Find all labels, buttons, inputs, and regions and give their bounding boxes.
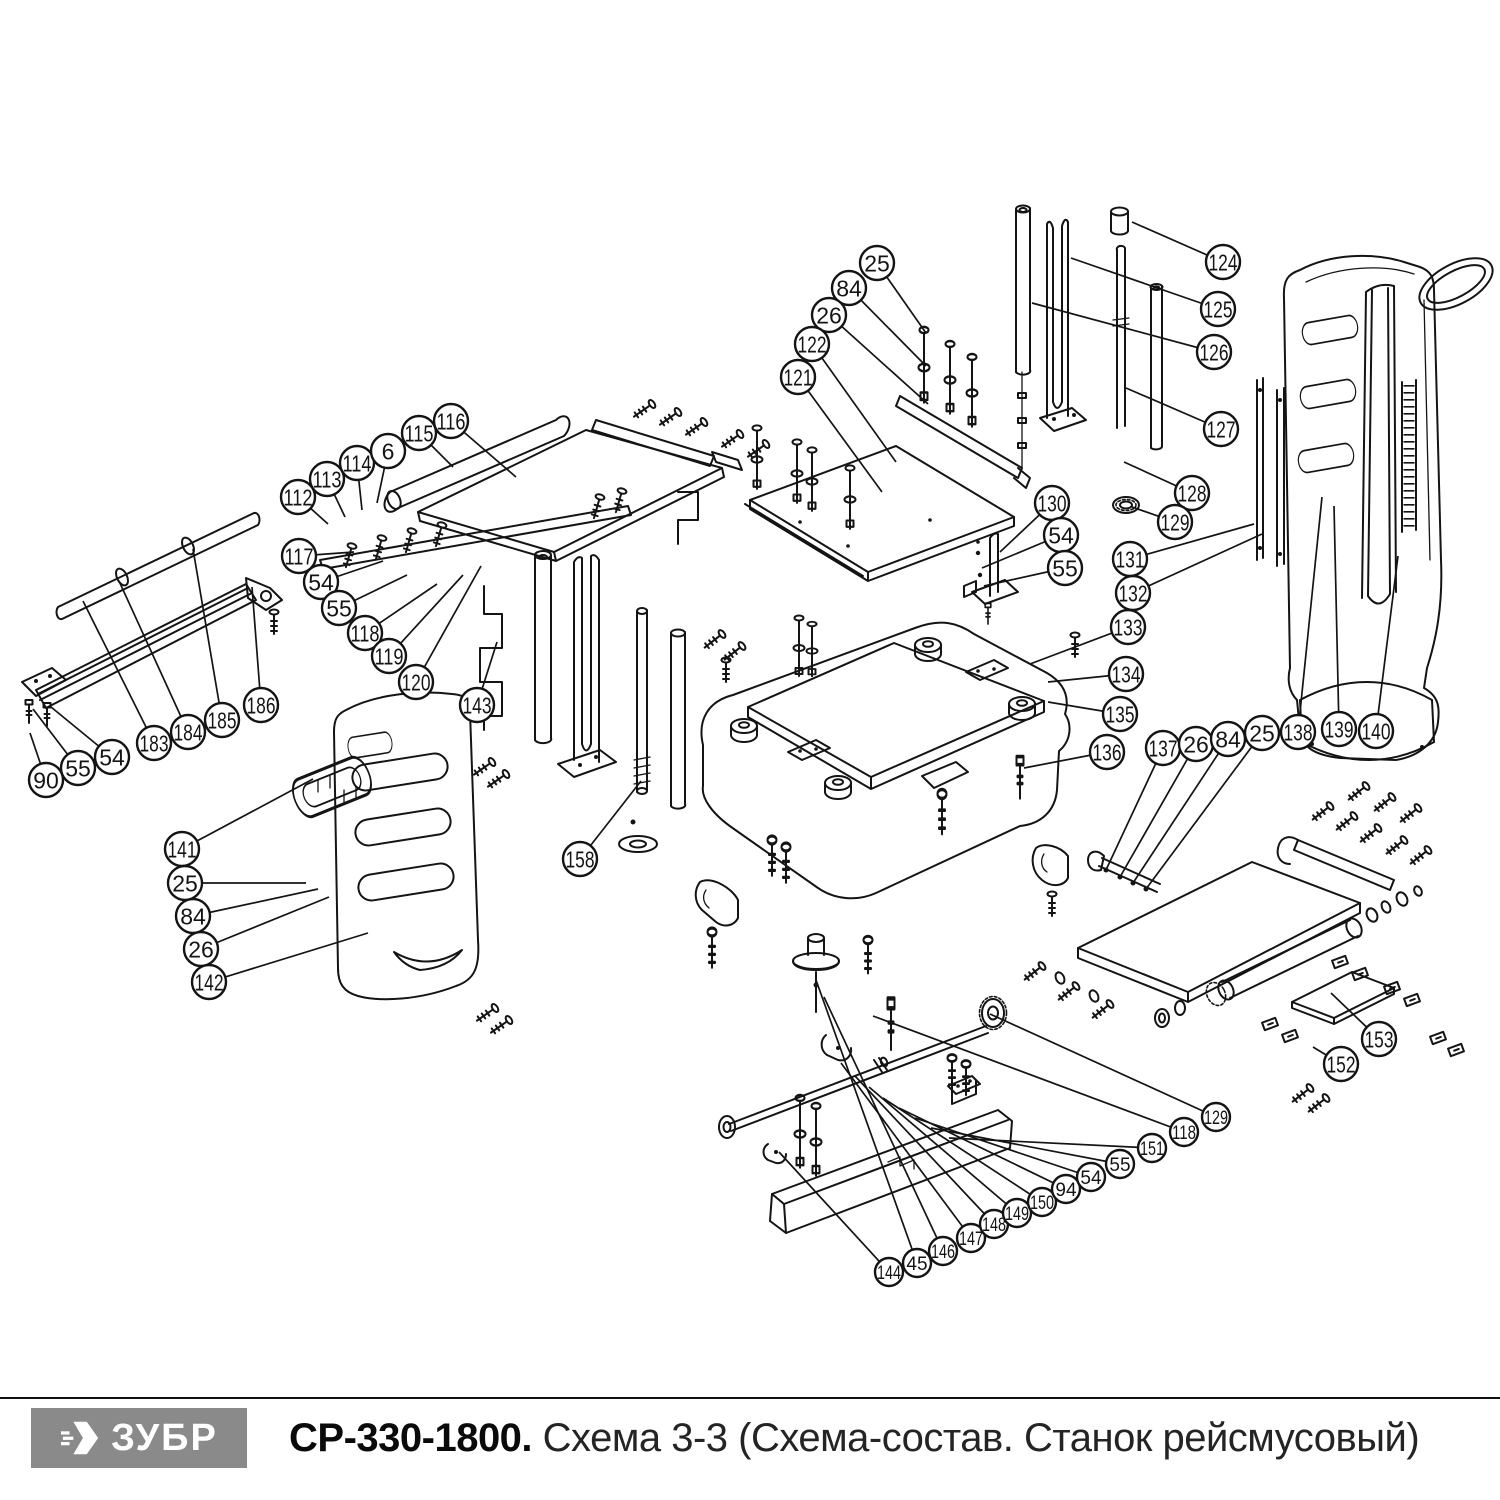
balloon-number: 152 [1327, 1051, 1356, 1077]
balloon-number: 150 [1030, 1193, 1054, 1214]
leader-line [1071, 258, 1218, 309]
bottom-drive-assembly [719, 934, 1012, 1233]
balloon-number: 120 [402, 669, 431, 695]
balloon-number: 45 [906, 1254, 927, 1275]
balloon-number: 117 [285, 543, 314, 569]
exploded-parts-diagram-page: 2584261221211241251261271281291305455131… [0, 0, 1500, 1500]
balloon-number: 144 [877, 1263, 901, 1284]
leader-line [931, 1128, 1120, 1164]
column-posts [535, 551, 685, 852]
balloon-number: 128 [1178, 480, 1207, 506]
leader-line [873, 1016, 1184, 1132]
leader-line [812, 344, 896, 462]
balloon-number: 84 [1215, 726, 1241, 752]
balloon-number: 55 [1052, 555, 1078, 581]
balloon-number: 140 [1362, 718, 1391, 744]
balloon-number: 134 [1112, 661, 1141, 687]
balloon-number: 137 [1149, 735, 1178, 761]
top-posts [1016, 206, 1163, 514]
leader-line [1133, 534, 1262, 593]
balloon-number: 25 [172, 870, 198, 896]
balloon-number: 129 [1204, 1108, 1228, 1129]
balloon-number: 115 [405, 420, 434, 446]
balloon-number: 146 [931, 1242, 955, 1263]
balloon-number: 118 [1172, 1123, 1196, 1144]
balloon-number: 54 [99, 744, 125, 770]
support-bar-assembly [22, 513, 282, 726]
footer-divider [0, 1397, 1500, 1399]
leader-line [1133, 739, 1228, 883]
balloon-number: 131 [1116, 546, 1145, 572]
balloon-number: 130 [1038, 490, 1067, 516]
zubr-logo: ЗУБР [31, 1408, 247, 1468]
balloon-number: 25 [1249, 720, 1275, 746]
balloon-number: 158 [566, 846, 595, 872]
balloon-number: 132 [1119, 580, 1148, 606]
balloon-number: 121 [784, 364, 813, 390]
balloon-number: 55 [65, 755, 91, 781]
balloon-number: 122 [798, 331, 827, 357]
leader-line [193, 889, 318, 916]
left-side-panel [288, 693, 514, 1037]
leader-line [201, 897, 329, 949]
exploded-view-drawing: 2584261221211241251261271281291305455131… [0, 0, 1500, 1500]
leader-line [182, 779, 313, 849]
leader-line [816, 980, 917, 1263]
leader-line [1032, 303, 1214, 352]
balloon-number: 127 [1207, 416, 1236, 442]
balloon-number: 129 [1161, 509, 1190, 535]
leader-line [1334, 506, 1339, 729]
balloon-number: 54 [1080, 1168, 1102, 1189]
balloon-number: 112 [284, 484, 313, 510]
balloon-number: 138 [1284, 719, 1313, 745]
leader-line [209, 933, 368, 982]
balloon-number: 142 [195, 969, 224, 995]
balloon-number: 84 [180, 903, 206, 929]
balloon-number: 141 [168, 836, 197, 862]
model-number: СР-330-1800. [289, 1416, 532, 1460]
balloon-number: 136 [1093, 739, 1122, 765]
leader-line [119, 581, 188, 732]
balloon-number: 139 [1325, 716, 1354, 742]
leader-line [829, 315, 928, 404]
balloon-number: 119 [375, 643, 404, 669]
balloon-number: 186 [247, 692, 276, 718]
balloon-number: 55 [326, 595, 352, 621]
balloon-number: 185 [208, 707, 237, 733]
balloon-number: 153 [1365, 1026, 1394, 1052]
leader-line [798, 377, 882, 492]
balloon-number: 26 [816, 302, 842, 328]
balloon-number: 113 [313, 466, 342, 492]
balloon-number: 26 [188, 936, 214, 962]
schema-subtitle: Схема 3-3 (Схема-состав. Станок рейсмусо… [543, 1416, 1419, 1460]
balloon-number: 149 [1005, 1204, 1029, 1225]
callout-balloons: 2584261221211241251261271281291305455131… [29, 222, 1398, 1286]
leader-line [1376, 556, 1398, 731]
balloon-number: 90 [33, 767, 59, 793]
outfeed-table-assembly [1022, 781, 1464, 1115]
balloon-number: 6 [382, 438, 395, 464]
balloon-number: 151 [1140, 1139, 1164, 1160]
balloon-number: 147 [959, 1229, 983, 1250]
balloon-number: 55 [1109, 1155, 1130, 1176]
balloon-number: 25 [864, 250, 890, 276]
zubr-arrow-icon [60, 1417, 102, 1459]
balloon-number: 126 [1200, 339, 1229, 365]
footer: ЗУБР СР-330-1800. Схема 3-3 (Схема-соста… [0, 1397, 1500, 1468]
leader-line [1298, 497, 1322, 732]
balloon-number: 124 [1209, 249, 1238, 275]
balloon-number: 26 [1183, 731, 1209, 757]
leader-line [416, 566, 481, 682]
balloon-number: 84 [836, 275, 862, 301]
leader-line [193, 549, 222, 720]
diagram-title: СР-330-1800. Схема 3-3 (Схема-состав. Ст… [289, 1416, 1419, 1461]
balloon-number: 183 [140, 730, 169, 756]
leader-line [1130, 524, 1254, 559]
balloon-number: 135 [1106, 701, 1135, 727]
balloon-number: 94 [1055, 1180, 1077, 1201]
balloon-number: 184 [174, 719, 203, 745]
right-side-panel [1257, 248, 1500, 760]
balloon-number: 114 [343, 450, 372, 476]
balloon-number: 116 [437, 408, 466, 434]
balloon-number: 54 [1048, 522, 1074, 548]
main-base [696, 616, 1080, 1050]
balloon-number: 133 [1114, 614, 1143, 640]
balloon-number: 54 [308, 569, 334, 595]
balloon-number: 148 [982, 1215, 1006, 1236]
zubr-logo-text: ЗУБР [111, 1419, 218, 1457]
balloon-number: 125 [1204, 296, 1233, 322]
balloon-number: 143 [463, 692, 492, 718]
